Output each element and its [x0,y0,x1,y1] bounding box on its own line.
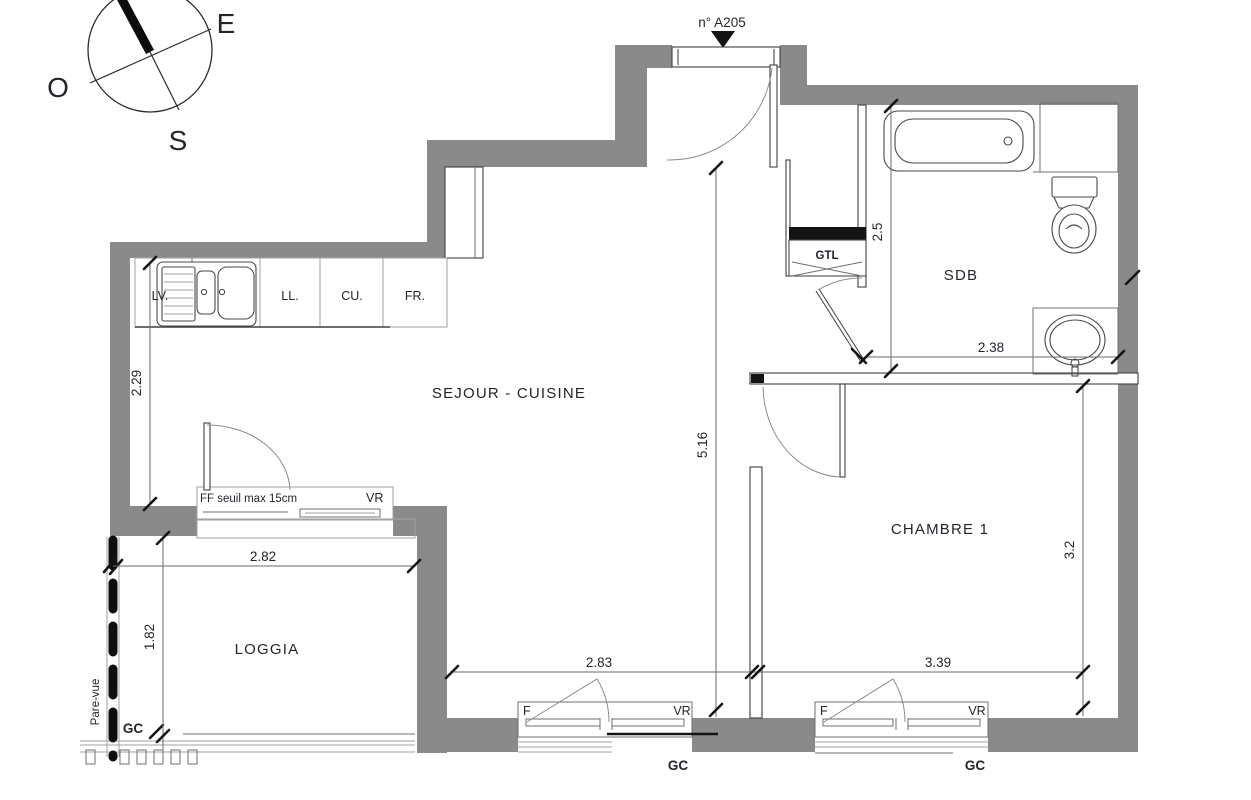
interior-partitions [445,105,1138,718]
sdb-door-leaf [816,289,864,362]
pare-vue-label: Pare-vue [90,679,102,726]
window-chambre-glazing-right [908,719,980,726]
loggia-door-swing-arc [207,425,290,490]
sdb-door [816,278,866,363]
entrance-arrow-icon [711,31,735,48]
wall-kitchen-top [110,242,445,258]
pare-vue-screen: Pare-vue [90,537,122,757]
ff-seuil-label: FF seuil max 15cm [200,493,297,505]
window-chambre-f-label: F [820,704,828,718]
kitchen-counter: LV. LL. CU. FR. [135,258,447,327]
window-sejour-sill-lines [518,742,612,752]
dim-label-182: 1.82 [142,624,157,650]
room-label-sdb: SDB [944,267,978,284]
dim-label-282: 2.82 [250,549,276,564]
gtl-black-bar [789,227,866,240]
loggia-door: FF seuil max 15cm VR [197,423,415,538]
gtl-closet: GTL [786,160,866,276]
partition-sejour-chambre [750,467,762,718]
window-sejour: F VR GC [518,679,718,773]
compass-east-west-axis [90,29,211,83]
chambre-door-leaf [840,384,845,477]
window-chambre-gc-label: GC [965,758,986,773]
window-chambre: F VR GC [815,679,988,773]
wall-left [110,242,130,536]
chambre-door-swing-arc [763,387,840,477]
loggia-door-leaf [204,423,210,490]
wall-upper-left-vertical [427,140,445,258]
window-sejour-mullion [600,718,612,730]
entrance-door-leaf [770,65,777,167]
partition-hall-chambre [750,373,1138,384]
dim-label-516: 5.16 [695,432,710,458]
loggia-railing: GC [80,721,415,764]
duct-shaft [445,167,483,258]
wall-right [1118,85,1138,752]
wall-sejour-south-left [110,506,197,536]
entrance-marker: n° A205 [698,15,745,48]
dim-label-25: 2.5 [870,223,885,242]
dim-label-229: 2.29 [129,370,144,396]
kitchen-label-cu: CU. [341,289,363,303]
unit-number-label: n° A205 [698,15,745,30]
kitchen-sink [157,262,256,326]
partition-door-jamb [751,374,764,383]
kitchen-label-ll: LL. [281,289,298,303]
dim-label-238: 2.38 [978,340,1004,355]
kitchen-label-fr: FR. [405,289,425,303]
railing-lines [80,741,415,752]
window-chambre-sill-lines [815,742,988,747]
window-sejour-vr-label: VR [673,704,690,718]
compass-label-west: O [47,72,69,103]
window-sejour-casement-swing [527,679,609,722]
wall-entry-top [615,45,672,68]
sink-basin-large [218,267,254,319]
railing-tick [150,725,163,738]
room-label-chambre: CHAMBRE 1 [891,521,989,538]
entrance-door-swing-arc [667,68,772,160]
toilet [1052,177,1097,253]
compass-rose: E O S [47,0,235,156]
window-sejour-f-label: F [523,704,531,718]
dim-loggia-depth: 1.82 [142,532,169,750]
window-sejour-glazing-left [526,719,600,726]
window-sejour-gc-label: GC [668,758,689,773]
kitchen-label-lv: LV. [152,289,169,303]
window-chambre-mullion [896,718,908,730]
dim-chambre-depth: 3.2 [1062,380,1089,716]
window-chambre-glazing-left [823,719,893,726]
window-chambre-vr-label: VR [968,704,985,718]
wall-bottom-a [447,718,518,752]
dim-sejour-window: 2.83 3.39 [446,655,1089,678]
room-label-sejour: SEJOUR - CUISINE [432,385,586,402]
dim-label-32: 3.2 [1062,541,1077,560]
dim-loggia-width: 2.82 [113,549,420,572]
toilet-tank [1052,177,1097,197]
loggia-vr-label: VR [366,491,383,505]
compass-label-east: E [217,8,236,39]
dim-label-339: 3.39 [925,655,951,670]
bathroom-closet [1033,103,1118,172]
chambre-door [763,384,845,477]
floor-plan-svg: E O S n° A205 [0,0,1251,800]
bathroom-sink [1033,308,1118,376]
dim-hall-length: 5.16 [695,162,722,717]
window-chambre-casement-swing [824,679,905,722]
compass-north-needle [119,0,150,52]
gtl-label: GTL [816,250,839,262]
window-sejour-glazing-right [612,719,684,726]
entrance-door [667,47,780,167]
wall-upper-horizontal [427,140,647,167]
dim-label-283: 2.83 [586,655,612,670]
compass-south-axis [150,52,179,110]
floor-plan-page: E O S n° A205 [0,0,1251,800]
bathtub [884,111,1034,171]
wall-top-right [807,85,1118,105]
bathroom-closet-outline [1040,103,1118,172]
sdb-door-swing-arc [818,278,862,290]
entrance-door-frame [672,47,780,67]
compass-label-south: S [169,125,188,156]
loggia-door-sill [197,519,415,538]
wall-bottom-c [988,718,1138,752]
loggia-gc-label: GC [123,721,144,736]
kitchen-cell-dividers [260,258,383,327]
wall-entry-right-pillar [780,45,807,105]
wall-loggia-divider [417,506,447,753]
room-label-loggia: LOGGIA [235,641,300,658]
